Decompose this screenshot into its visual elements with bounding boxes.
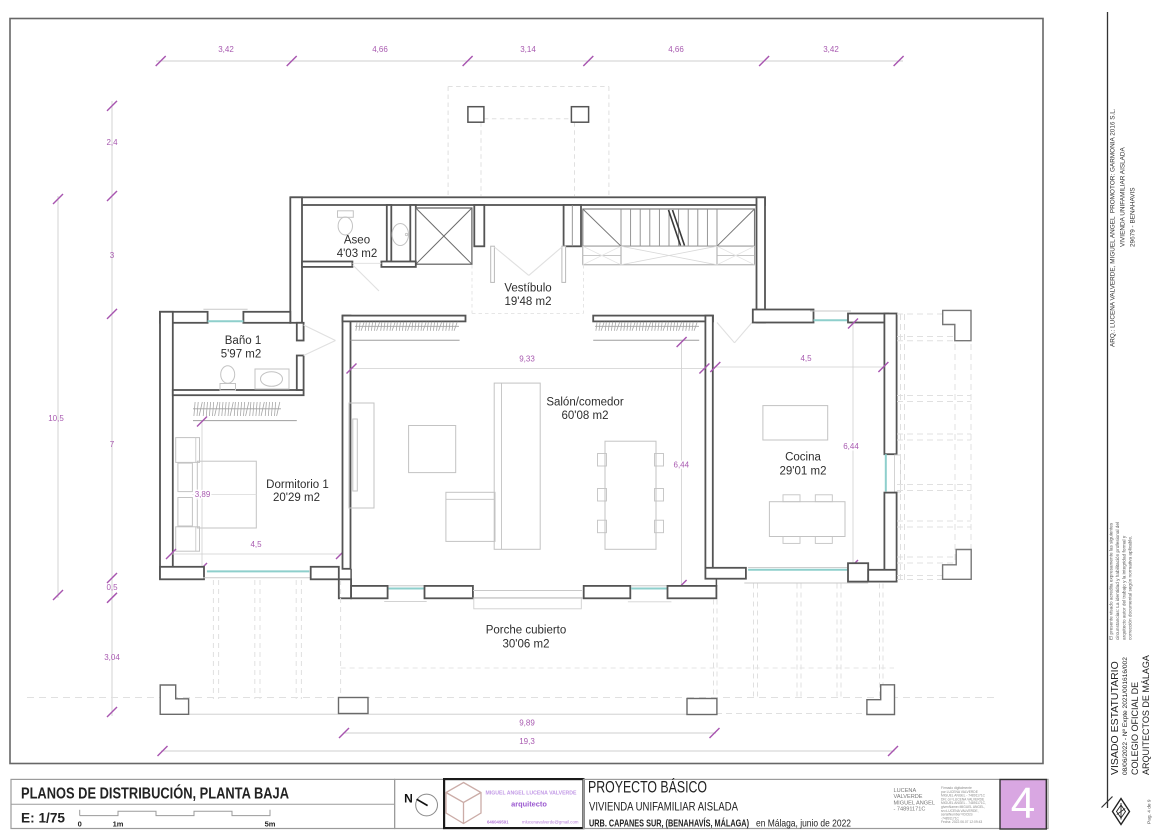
svg-text:3: 3 — [110, 251, 115, 260]
svg-text:6,44: 6,44 — [843, 442, 859, 451]
svg-text:3,42: 3,42 — [218, 45, 234, 54]
svg-text:- 74891171C: - 74891171C — [894, 807, 926, 813]
svg-text:08/06/2022 - Nº Expte 2021/001: 08/06/2022 - Nº Expte 2021/001616/002 — [1122, 657, 1129, 775]
svg-text:4,5: 4,5 — [800, 354, 812, 363]
svg-text:3,14: 3,14 — [520, 45, 536, 54]
svg-text:El presente visado acredita ex: El presente visado acredita expresamente… — [1109, 522, 1114, 640]
svg-text:Salón/comedor: Salón/comedor — [546, 397, 624, 409]
svg-text:N: N — [404, 792, 413, 806]
svg-text:7: 7 — [110, 440, 115, 449]
svg-text:PROYECTO BÁSICO: PROYECTO BÁSICO — [588, 778, 707, 797]
svg-text:MIGUEL ANGEL: MIGUEL ANGEL — [894, 800, 935, 806]
svg-text:2,4: 2,4 — [106, 138, 118, 147]
svg-text:6,44: 6,44 — [674, 461, 690, 470]
svg-text:COLEGIO OFICIAL DE: COLEGIO OFICIAL DE — [1130, 682, 1140, 775]
svg-text:4'03 m2: 4'03 m2 — [337, 248, 378, 260]
svg-text:29'01 m2: 29'01 m2 — [780, 466, 827, 478]
svg-text:30'06 m2: 30'06 m2 — [503, 639, 550, 651]
svg-text:4,66: 4,66 — [668, 45, 684, 54]
svg-text:mlucenavalverde@gmail.com: mlucenavalverde@gmail.com — [522, 820, 579, 825]
svg-text:4,5: 4,5 — [250, 540, 262, 549]
svg-text:VALVERDE: VALVERDE — [894, 794, 923, 800]
svg-text:ARQ.: LUCENA VALVERDE, MIGUEL: ARQ.: LUCENA VALVERDE, MIGUEL ANGEL PROM… — [1110, 174, 1117, 347]
svg-text:E: 1/75: E: 1/75 — [21, 810, 65, 826]
svg-text:3,04: 3,04 — [104, 653, 120, 662]
svg-text:ARQUITECTOS DE MÁLAGA: ARQUITECTOS DE MÁLAGA — [1141, 655, 1151, 775]
svg-text:9,89: 9,89 — [519, 719, 535, 728]
svg-text:1m: 1m — [113, 820, 124, 829]
svg-text:VIVIENDA UNIFAMILIAR AISLADA: VIVIENDA UNIFAMILIAR AISLADA — [1120, 146, 1127, 247]
svg-text:0,5: 0,5 — [106, 583, 118, 592]
svg-text:646049591: 646049591 — [487, 820, 509, 825]
svg-text:19,3: 19,3 — [519, 737, 535, 746]
svg-text:Baño 1: Baño 1 — [225, 335, 261, 347]
svg-text:19'48 m2: 19'48 m2 — [505, 296, 552, 308]
svg-text:60'08 m2: 60'08 m2 — [562, 410, 609, 422]
svg-text:Vestíbulo: Vestíbulo — [504, 283, 551, 295]
svg-text:arquitecto autor del trabajo y: arquitecto autor del trabajo y la integr… — [1121, 535, 1126, 640]
svg-text:5m: 5m — [265, 820, 276, 829]
svg-text:Dormitorio 1: Dormitorio 1 — [266, 479, 329, 491]
svg-text:en Málaga, junio de 2022: en Málaga, junio de 2022 — [756, 818, 851, 830]
svg-text:PLANOS DE DISTRIBUCIÓN, PLANTA: PLANOS DE DISTRIBUCIÓN, PLANTA BAJA — [21, 785, 289, 803]
svg-text:LUCENA: LUCENA — [894, 788, 917, 794]
svg-text:5'97 m2: 5'97 m2 — [221, 349, 262, 361]
svg-text:corrección documental según no: corrección documental según normativa ap… — [1128, 536, 1133, 640]
svg-text:URB. CAPANES SUR, (BENAHAVÍS,: URB. CAPANES SUR, (BENAHAVÍS, MÁLAGA) — [589, 817, 749, 830]
svg-text:MIGUEL ANGEL LUCENA VALVERDE: MIGUEL ANGEL LUCENA VALVERDE — [486, 791, 577, 797]
svg-text:Porche cubierto: Porche cubierto — [486, 625, 567, 637]
svg-text:10,5: 10,5 — [48, 414, 64, 423]
svg-text:4,66: 4,66 — [372, 45, 388, 54]
svg-text:0: 0 — [78, 820, 82, 829]
svg-text:29679 - BENAHAVIS: 29679 - BENAHAVIS — [1130, 187, 1137, 247]
svg-text:circunstancias: La identidad y: circunstancias: La identidad y habilitac… — [1115, 522, 1120, 640]
svg-text:4: 4 — [1011, 779, 1035, 828]
svg-text:VISADO ESTATUTARIO: VISADO ESTATUTARIO — [1109, 661, 1121, 775]
svg-text:20'29 m2: 20'29 m2 — [273, 492, 320, 504]
svg-text:3,89: 3,89 — [195, 490, 211, 499]
svg-text:Pag. 4 de 9: Pag. 4 de 9 — [1147, 799, 1153, 824]
svg-text:3,42: 3,42 — [823, 45, 839, 54]
svg-text:arquitecto: arquitecto — [511, 800, 547, 809]
svg-text:GARMONIA 2016 S.L.: GARMONIA 2016 S.L. — [1110, 108, 1117, 172]
svg-text:Aseo: Aseo — [344, 235, 370, 247]
svg-text:VIVIENDA UNIFAMILIAR AISLADA: VIVIENDA UNIFAMILIAR AISLADA — [589, 800, 738, 814]
svg-text:Fecha: 2022.06.07 12:09:43: Fecha: 2022.06.07 12:09:43 — [941, 820, 982, 824]
svg-text:9,33: 9,33 — [519, 355, 535, 364]
svg-text:Cocina: Cocina — [785, 452, 821, 464]
